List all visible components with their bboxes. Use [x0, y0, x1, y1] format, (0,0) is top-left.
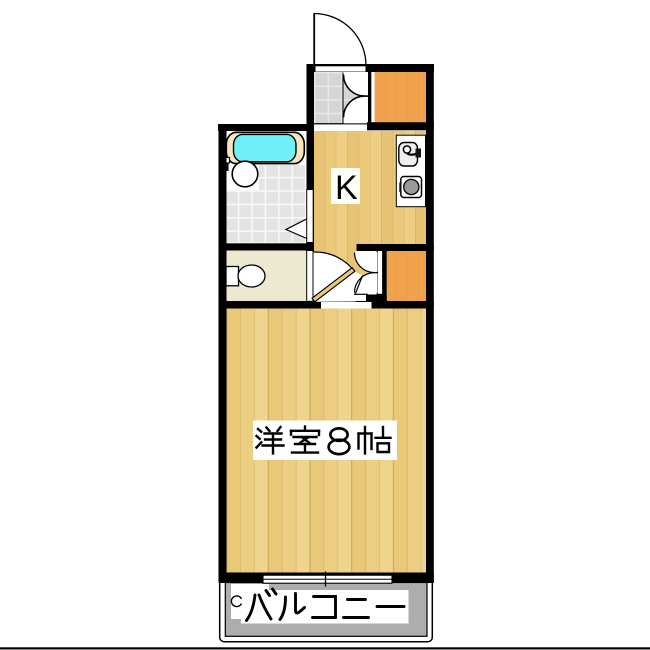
svg-text:K: K	[335, 169, 358, 207]
